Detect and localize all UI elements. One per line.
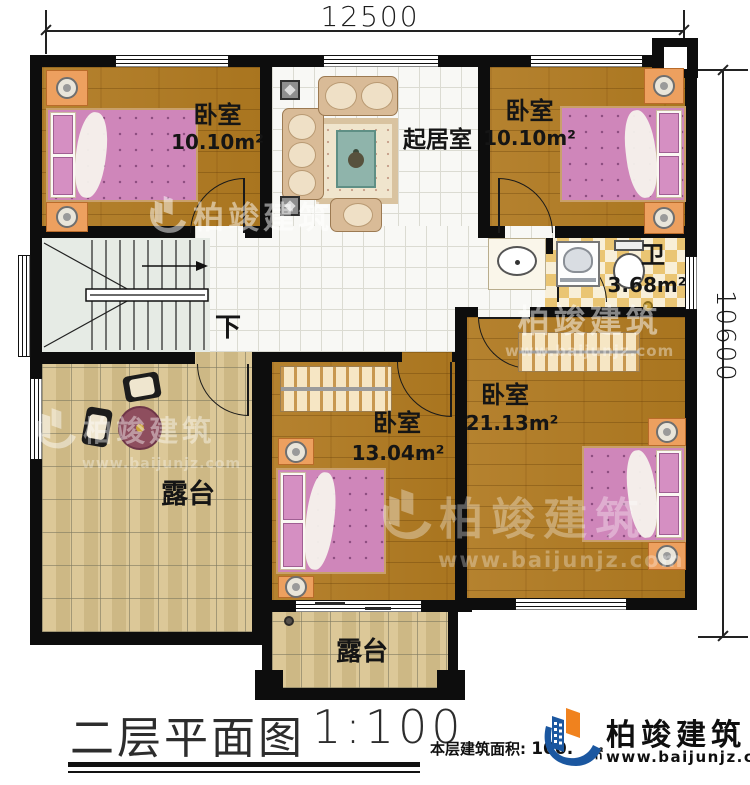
- window-stairwell-left: [18, 255, 31, 357]
- room-label-bedroom-middle: 卧室: [352, 410, 442, 436]
- terrace-pillar-right: [437, 670, 465, 700]
- table-plant: [348, 152, 364, 168]
- bed: [276, 468, 386, 574]
- sofa-cushion: [343, 203, 373, 227]
- right-dimension-label: 10600: [710, 290, 740, 360]
- room-label-terrace-left: 露台: [146, 480, 230, 510]
- brand-website: www.baijunjz.com: [606, 748, 750, 766]
- bed-pillows: [656, 450, 682, 538]
- wall-bedright-bottom-a: [455, 598, 515, 610]
- bed-sheet-fold: [71, 110, 111, 199]
- lamp-icon: [656, 545, 678, 567]
- chimney-flue: [664, 47, 687, 69]
- stairs: [42, 238, 210, 352]
- drying-rack: [518, 332, 640, 372]
- brand-logo: 柏竣建筑 www.baijunjz.com: [532, 702, 746, 774]
- wall-left: [30, 55, 42, 645]
- bed: [582, 446, 686, 542]
- wall-terrace-top: [30, 352, 195, 364]
- window-bedroom-top-right: [530, 55, 643, 67]
- sliding-door-handle: [315, 602, 345, 605]
- nightstand: [648, 418, 686, 446]
- wall-terrace-left-bottom: [30, 632, 272, 645]
- wall-bedright-bottom-b: [625, 598, 697, 610]
- patio-table-center: [136, 424, 144, 432]
- stairs-down-label: 下: [210, 314, 246, 343]
- side-table: [280, 80, 300, 100]
- lamp-icon: [285, 576, 307, 598]
- title-underline-thick: [68, 762, 420, 767]
- window-bedroom-top-left: [115, 55, 229, 67]
- room-label-bathroom: 卫: [636, 242, 670, 268]
- terrace-drain: [284, 616, 294, 626]
- lamp-icon: [56, 77, 78, 99]
- sofa-cushion: [325, 82, 357, 110]
- side-table: [280, 196, 300, 216]
- sofa-cushion: [288, 114, 316, 140]
- wall-bath-left-stub: [545, 238, 553, 254]
- lamp-icon: [653, 75, 675, 97]
- sofa-cushion: [361, 82, 393, 110]
- wall-bedright-top-left: [455, 307, 478, 317]
- plan-title: 二层平面图: [70, 702, 305, 766]
- wall-bed1-bottom-stub: [245, 226, 272, 238]
- bed-pillows: [656, 110, 682, 198]
- wall-bedright-top: [530, 307, 697, 317]
- floor-plan-canvas: 12500 10600: [0, 0, 750, 785]
- floor-drain: [643, 301, 653, 311]
- washing-machine-drum: [563, 247, 593, 273]
- room-area-bedroom-middle: 13.04m²: [342, 442, 454, 464]
- window-terrace-left: [30, 378, 42, 460]
- room-label-bedroom-right: 卧室: [462, 382, 548, 408]
- room-area-bedroom-right: 21.13m²: [452, 412, 572, 434]
- room-label-bedroom-top-right: 卧室 10.10m²: [472, 98, 587, 151]
- lamp-icon: [653, 207, 675, 229]
- wall-terrace-bottom-edge: [262, 688, 458, 700]
- nightstand: [278, 576, 314, 598]
- top-dimension-label: 12500: [300, 0, 440, 33]
- wall-right: [685, 55, 697, 610]
- sofa-horizontal: [318, 76, 398, 116]
- sink-drain: [515, 260, 520, 265]
- room-area-bathroom: 3.68m²: [604, 274, 690, 296]
- chair-cushion: [86, 414, 108, 441]
- sofa-cushion: [288, 170, 316, 196]
- bed-pillows: [50, 112, 76, 198]
- chair-cushion: [129, 376, 156, 398]
- window-living-room: [323, 55, 439, 67]
- armchair: [330, 198, 382, 232]
- terrace-pillar-left: [255, 670, 283, 700]
- wardrobe: [280, 366, 392, 412]
- title-underline-thin: [68, 771, 420, 773]
- brand-logo-mark: [532, 704, 604, 772]
- wall-bedmid-top: [272, 352, 402, 362]
- lamp-icon: [56, 206, 78, 228]
- sofa-vertical: [282, 108, 324, 200]
- nightstand: [278, 438, 314, 465]
- floor-area-label: 本层建筑面积:: [430, 740, 526, 758]
- room-label-terrace-bottom: 露台: [320, 638, 404, 667]
- room-area: 10.10m²: [483, 126, 576, 150]
- window-bedroom-right-bottom: [515, 598, 627, 610]
- room-label-bedroom-top-left: 卧室 10.10m²: [160, 102, 275, 155]
- bed-pillows: [280, 472, 306, 570]
- nightstand: [46, 70, 88, 106]
- sofa-cushion: [288, 142, 316, 168]
- nightstand: [644, 202, 684, 234]
- nightstand: [46, 202, 88, 232]
- sliding-door-handle: [365, 607, 391, 610]
- nightstand: [644, 68, 684, 104]
- bed-sheet-fold: [300, 471, 340, 572]
- nightstand: [648, 542, 686, 570]
- wall-bedmid-bedright: [455, 307, 467, 600]
- wall-bedmid-bottom-a: [252, 600, 295, 612]
- lamp-icon: [285, 441, 307, 463]
- washing-machine-panel: [560, 278, 596, 282]
- room-area: 10.10m²: [171, 130, 264, 154]
- lamp-icon: [656, 421, 678, 443]
